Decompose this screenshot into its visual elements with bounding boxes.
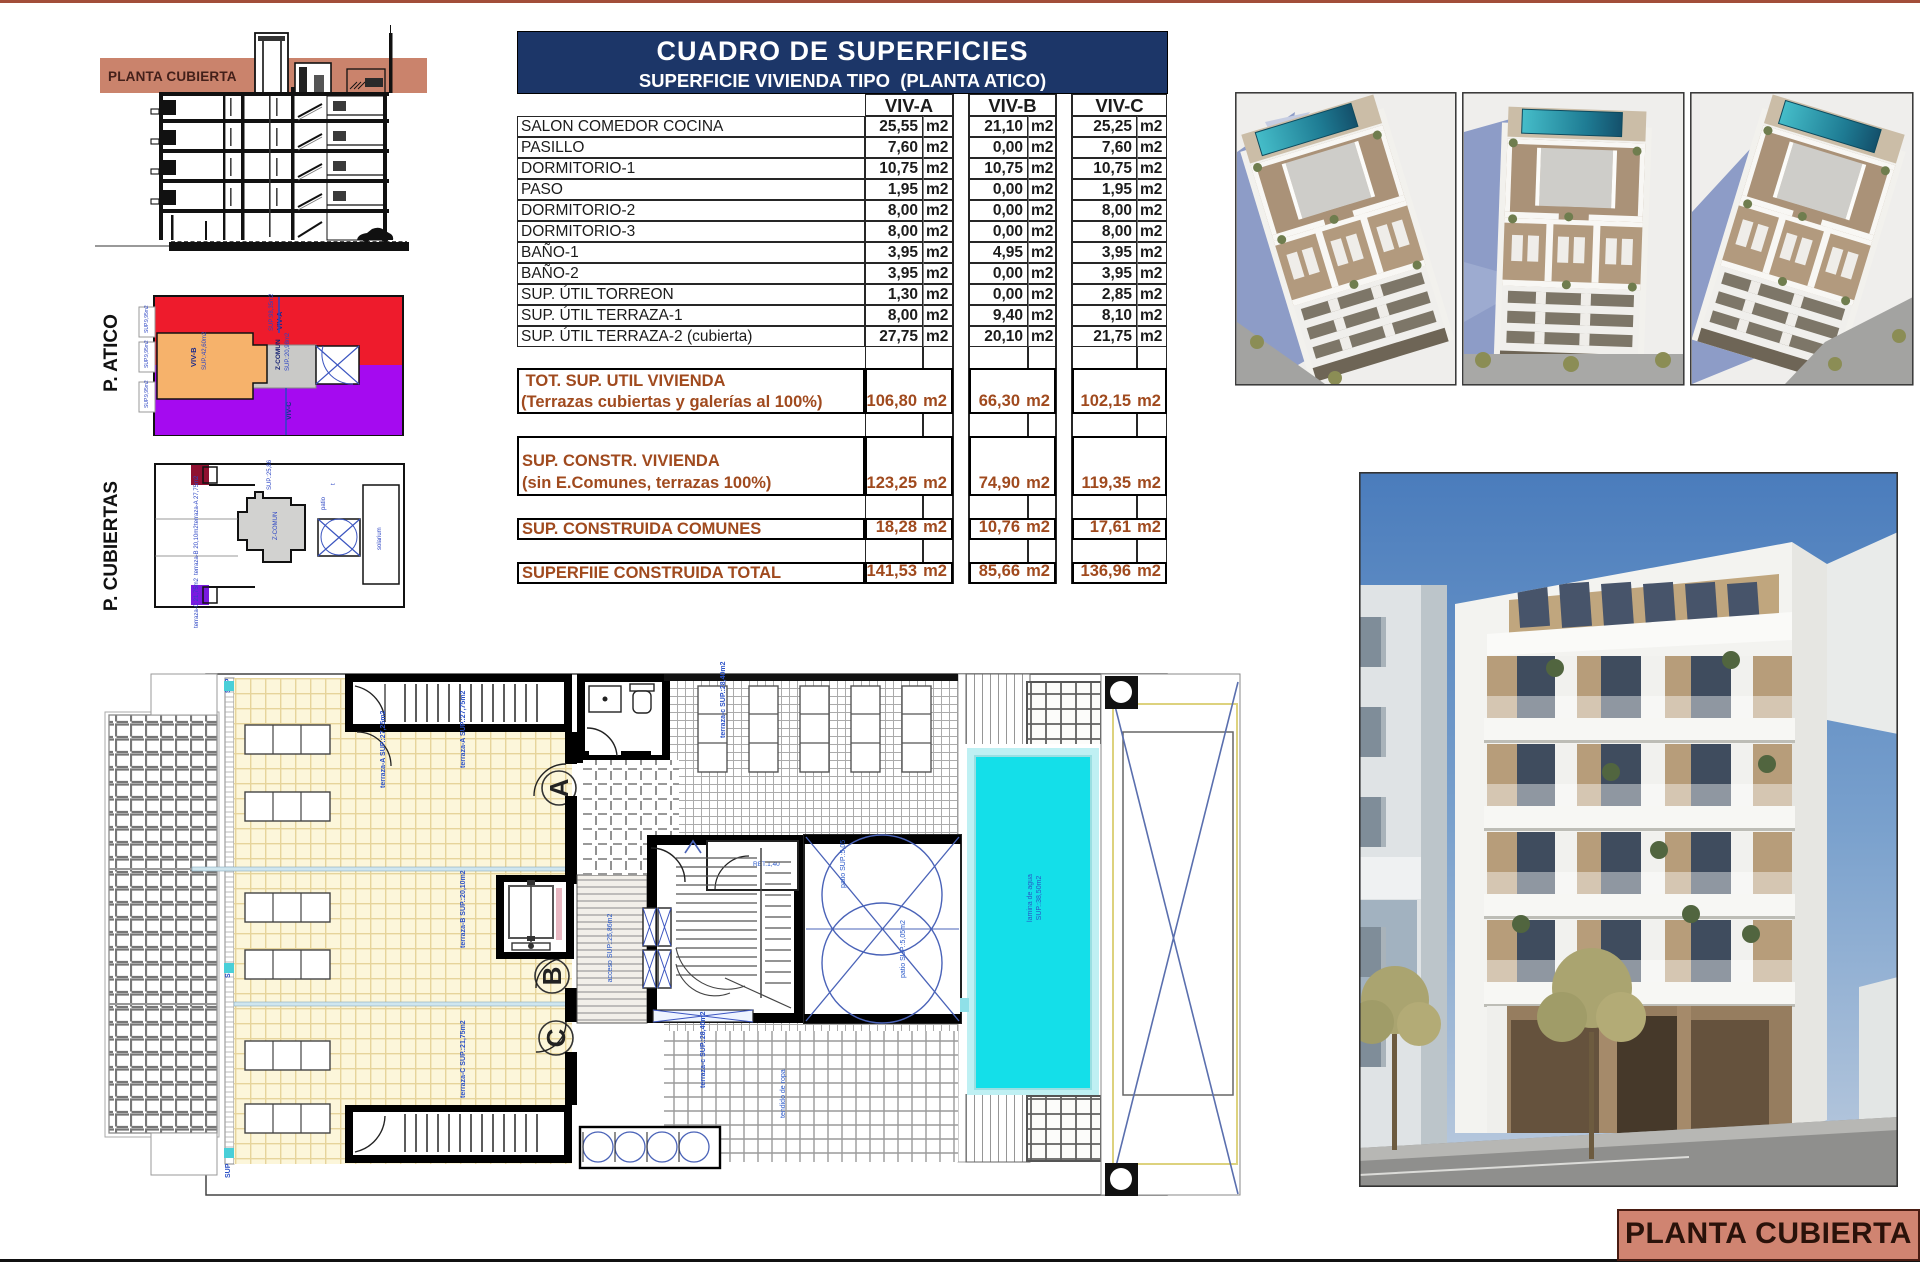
- svg-text:SUP:98,35m2: SUP:98,35m2: [269, 293, 275, 331]
- svg-text:lamina de agua: lamina de agua: [1027, 874, 1034, 922]
- svg-text:terraza-c SUP.:28,40m2: terraza-c SUP.:28,40m2: [700, 1011, 707, 1088]
- svg-text:SUP.9,95m2: SUP.9,95m2: [144, 380, 150, 408]
- svg-text:VIV-B: VIV-B: [189, 347, 198, 367]
- svg-text:terraza-c SUP.:28,40m2: terraza-c SUP.:28,40m2: [720, 661, 727, 738]
- svg-text:SUP.:25,86: SUP.:25,86: [267, 459, 273, 490]
- svg-text:terraza-B SUP.:20,10m2: terraza-B SUP.:20,10m2: [460, 870, 467, 948]
- svg-text:patio SUP.:5,05: patio SUP.:5,05: [840, 840, 847, 888]
- svg-text:terraza-B 20,10m2: terraza-B 20,10m2: [194, 525, 200, 575]
- svg-text:terraza-A SUP.:27,25m2: terraza-A SUP.:27,25m2: [380, 710, 387, 788]
- svg-text:Z-COMUN: Z-COMUN: [275, 339, 282, 370]
- svg-text:B: B: [537, 967, 567, 986]
- svg-text:SUP.:38,50m2: SUP.:38,50m2: [1036, 876, 1043, 921]
- svg-text:patio SUP.:5,05m2: patio SUP.:5,05m2: [900, 920, 907, 978]
- svg-text:VIV-C: VIV-C: [286, 402, 293, 420]
- svg-text:tendido de ropa: tendido de ropa: [780, 1069, 787, 1118]
- svg-text:SUP.:20,98m2: SUP.:20,98m2: [285, 332, 291, 371]
- svg-text:PLANTA CUBIERTA: PLANTA CUBIERTA: [108, 69, 237, 84]
- svg-text:SUP.9,95m2: SUP.9,95m2: [144, 305, 150, 333]
- svg-text:terraza-C SUP.:21,75m2: terraza-C SUP.:21,75m2: [460, 1020, 467, 1098]
- svg-text:solarium: solarium: [377, 527, 383, 550]
- svg-text:VIV-A: VIV-A: [277, 312, 284, 330]
- svg-text:terraza-C 21,75m2: terraza-C 21,75m2: [194, 577, 200, 628]
- svg-text:SUP.9,95m2: SUP.9,95m2: [144, 340, 150, 368]
- svg-text:A: A: [544, 778, 574, 797]
- svg-text:P. CUBIERTAS: P. CUBIERTAS: [101, 481, 122, 611]
- svg-text:patio: patio: [321, 496, 327, 510]
- svg-text:SUP: SUP: [225, 1163, 232, 1178]
- svg-text:Z-COMUN: Z-COMUN: [273, 512, 279, 540]
- svg-text:acceso SUP.:25,86m2: acceso SUP.:25,86m2: [607, 914, 614, 983]
- svg-text:terraza-A 27,75m2: terraza-A 27,75m2: [194, 475, 200, 525]
- svg-text:P. ATICO: P. ATICO: [101, 314, 122, 392]
- svg-text:terraza-A SUP.:27,75m2: terraza-A SUP.:27,75m2: [460, 690, 467, 768]
- svg-text:SUP.:42,60m2: SUP.:42,60m2: [202, 331, 208, 370]
